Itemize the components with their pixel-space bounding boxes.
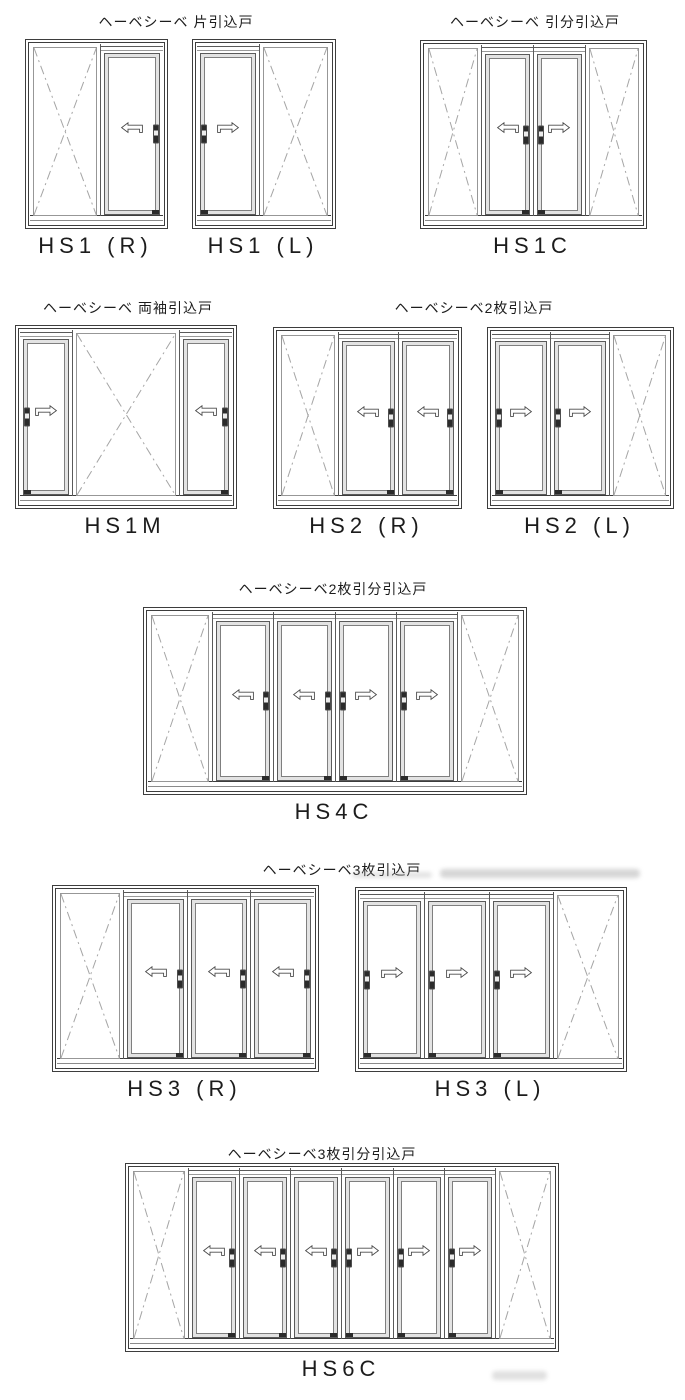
door-handle xyxy=(177,969,183,988)
fixed-panel xyxy=(130,1168,188,1339)
fixed-panel xyxy=(585,45,642,216)
door-leaf xyxy=(200,53,256,215)
door-leaf xyxy=(23,339,69,495)
diagram-hs1-l xyxy=(192,39,336,229)
sliding-door-panel xyxy=(239,1168,290,1339)
fixed-panel-inner xyxy=(76,333,176,496)
x-cross-icon xyxy=(429,49,477,215)
diagram-hs1-r xyxy=(25,39,168,229)
fixed-panel xyxy=(72,330,179,496)
door-leaf xyxy=(554,341,606,495)
panel-row xyxy=(57,890,314,1059)
fixed-panel-inner xyxy=(428,48,478,216)
diagram-frame xyxy=(28,42,165,226)
door-handle xyxy=(280,1248,286,1267)
door-leaf xyxy=(485,54,530,215)
arrow-right-icon xyxy=(509,966,533,981)
door-leaf xyxy=(294,1177,338,1338)
sliding-door-panel xyxy=(123,890,187,1059)
figure-title: ヘーベシーベ2枚引込戸 xyxy=(395,298,554,318)
fixed-panel xyxy=(609,332,669,496)
arrow-right-icon xyxy=(547,121,571,136)
sliding-door-panel xyxy=(179,330,232,496)
diagram-frame xyxy=(276,330,459,506)
diagram-label: HS3 (L) xyxy=(435,1076,546,1102)
door-leaf xyxy=(192,1177,236,1338)
x-cross-icon xyxy=(614,336,665,495)
sliding-door-panel xyxy=(489,892,554,1059)
fixed-panel-inner xyxy=(281,335,335,496)
diagram-hs4c xyxy=(143,607,527,795)
fixed-panel-inner xyxy=(151,615,209,782)
x-cross-icon xyxy=(77,334,175,495)
door-handle xyxy=(447,409,453,428)
arrow-left-icon xyxy=(292,687,316,702)
scan-smudge xyxy=(492,1371,547,1380)
diagram-hs1m xyxy=(15,325,237,509)
arrow-left-icon xyxy=(144,965,168,980)
x-cross-icon xyxy=(264,48,327,215)
door-leaf xyxy=(243,1177,287,1338)
panel-row xyxy=(130,1168,554,1339)
sliding-door-panel xyxy=(492,332,550,496)
figure-title: ヘーベシーベ2枚引分引込戸 xyxy=(239,579,428,599)
sliding-door-panel xyxy=(250,890,314,1059)
sliding-door-panel xyxy=(424,892,489,1059)
arrow-left-icon xyxy=(304,1244,328,1259)
fixed-panel-inner xyxy=(263,47,328,216)
figure-title: ヘーベシーベ 引分引込戸 xyxy=(450,12,620,32)
arrow-left-icon xyxy=(231,687,255,702)
x-cross-icon xyxy=(500,1172,550,1338)
door-leaf xyxy=(397,1177,441,1338)
sliding-door-panel xyxy=(550,332,609,496)
door-handle xyxy=(201,125,207,144)
diagram-label: HS2 (L) xyxy=(524,513,635,539)
door-handle xyxy=(496,409,502,428)
x-cross-icon xyxy=(462,616,518,781)
arrow-right-icon xyxy=(354,687,378,702)
sliding-door-panel xyxy=(290,1168,341,1339)
sliding-door-panel xyxy=(444,1168,495,1339)
sliding-door-panel xyxy=(360,892,424,1059)
door-leaf xyxy=(191,899,248,1058)
diagram-hs2-r xyxy=(273,327,462,509)
x-cross-icon xyxy=(558,896,618,1058)
door-handle xyxy=(346,1248,352,1267)
sliding-door-panel xyxy=(212,612,273,782)
diagram-hs2-l xyxy=(487,327,674,509)
fixed-panel xyxy=(278,332,338,496)
door-handle xyxy=(325,692,331,711)
door-handle xyxy=(494,970,500,989)
arrow-left-icon xyxy=(202,1244,226,1259)
door-leaf xyxy=(104,53,160,215)
door-handle xyxy=(429,970,435,989)
door-leaf xyxy=(495,341,547,495)
fixed-panel xyxy=(259,44,331,216)
door-handle xyxy=(24,408,30,427)
door-leaf xyxy=(254,899,311,1058)
arrow-left-icon xyxy=(271,965,295,980)
door-leaf xyxy=(448,1177,492,1338)
diagram-label: HS1C xyxy=(493,233,572,259)
diagram-frame xyxy=(146,610,524,792)
diagram-hs3-r xyxy=(52,885,319,1072)
arrow-right-icon xyxy=(509,404,533,419)
sliding-door-panel xyxy=(335,612,396,782)
panel-row xyxy=(492,332,669,496)
arrow-left-icon xyxy=(253,1244,277,1259)
sliding-door-panel xyxy=(341,1168,392,1339)
panel-row xyxy=(197,44,331,216)
door-types-figure: ヘーベシーベ 片引込戸ヘーベシーベ 引分引込戸ヘーベシーベ 両袖引込戸ヘーベシー… xyxy=(0,0,685,1400)
arrow-left-icon xyxy=(496,121,520,136)
fixed-panel-inner xyxy=(60,893,120,1059)
diagram-label: HS2 (R) xyxy=(309,513,423,539)
arrow-left-icon xyxy=(194,403,218,418)
sliding-door-panel xyxy=(188,1168,239,1339)
door-leaf xyxy=(402,341,454,495)
diagram-frame xyxy=(55,888,316,1069)
door-leaf xyxy=(345,1177,389,1338)
diagram-label: HS6C xyxy=(302,1356,381,1382)
panel-row xyxy=(278,332,457,496)
door-leaf xyxy=(537,54,582,215)
sliding-door-panel xyxy=(20,330,72,496)
diagram-frame xyxy=(423,43,644,226)
door-handle xyxy=(401,692,407,711)
sliding-door-panel xyxy=(393,1168,444,1339)
x-cross-icon xyxy=(134,1172,184,1338)
door-leaf xyxy=(363,901,421,1058)
figure-title: ヘーベシーベ 両袖引込戸 xyxy=(43,298,213,318)
panel-row xyxy=(20,330,232,496)
door-leaf xyxy=(216,621,270,781)
x-cross-icon xyxy=(152,616,208,781)
arrow-right-icon xyxy=(415,687,439,702)
arrow-left-icon xyxy=(356,404,380,419)
door-handle xyxy=(538,125,544,144)
door-handle xyxy=(304,969,310,988)
diagram-frame xyxy=(358,890,624,1069)
diagram-hs3-l xyxy=(355,887,627,1072)
door-handle xyxy=(398,1248,404,1267)
sliding-door-panel xyxy=(197,44,259,216)
door-handle xyxy=(263,692,269,711)
fixed-panel-inner xyxy=(613,335,666,496)
fixed-panel-inner xyxy=(499,1171,551,1339)
fixed-panel xyxy=(553,892,622,1059)
door-handle xyxy=(229,1248,235,1267)
diagram-label: HS3 (R) xyxy=(127,1076,241,1102)
fixed-panel-inner xyxy=(557,895,619,1059)
x-cross-icon xyxy=(34,48,96,215)
fixed-panel xyxy=(148,612,212,782)
figure-title: ヘーベシーベ3枚引分引込戸 xyxy=(228,1144,417,1164)
arrow-right-icon xyxy=(458,1244,482,1259)
diagram-label: HS1 (L) xyxy=(208,233,319,259)
fixed-panel xyxy=(57,890,123,1059)
diagram-label: HS1 (R) xyxy=(38,233,152,259)
x-cross-icon xyxy=(61,894,119,1058)
x-cross-icon xyxy=(590,49,638,215)
fixed-panel xyxy=(425,45,481,216)
door-handle xyxy=(364,970,370,989)
door-handle xyxy=(449,1248,455,1267)
diagram-label: HS4C xyxy=(295,799,374,825)
diagram-label: HS1M xyxy=(84,513,165,539)
arrow-left-icon xyxy=(207,965,231,980)
fixed-panel-inner xyxy=(589,48,639,216)
diagram-frame xyxy=(490,330,671,506)
door-leaf xyxy=(493,901,551,1058)
figure-title: ヘーベシーベ 片引込戸 xyxy=(99,12,254,32)
door-handle xyxy=(388,409,394,428)
door-handle xyxy=(331,1248,337,1267)
scan-smudge xyxy=(440,869,640,878)
door-handle xyxy=(340,692,346,711)
door-leaf xyxy=(342,341,394,495)
door-leaf xyxy=(183,339,229,495)
sliding-door-panel xyxy=(481,45,533,216)
door-handle xyxy=(523,125,529,144)
sliding-door-panel xyxy=(338,332,397,496)
sliding-door-panel xyxy=(100,44,163,216)
scan-smudge xyxy=(352,872,432,878)
panel-row xyxy=(148,612,522,782)
panel-row xyxy=(360,892,622,1059)
diagram-frame xyxy=(195,42,333,226)
arrow-right-icon xyxy=(380,966,404,981)
sliding-door-panel xyxy=(398,332,457,496)
diagram-frame xyxy=(18,328,234,506)
fixed-panel-inner xyxy=(133,1171,185,1339)
diagram-hs1c xyxy=(420,40,647,229)
door-handle xyxy=(555,409,561,428)
panel-row xyxy=(30,44,163,216)
door-leaf xyxy=(339,621,393,781)
arrow-left-icon xyxy=(416,404,440,419)
fixed-panel xyxy=(457,612,522,782)
sliding-door-panel xyxy=(273,612,334,782)
sliding-door-panel xyxy=(187,890,251,1059)
door-handle xyxy=(240,969,246,988)
fixed-panel-inner xyxy=(33,47,97,216)
fixed-panel xyxy=(30,44,100,216)
x-cross-icon xyxy=(282,336,334,495)
fixed-panel xyxy=(495,1168,554,1339)
arrow-left-icon xyxy=(120,120,144,135)
arrow-right-icon xyxy=(356,1244,380,1259)
arrow-right-icon xyxy=(216,120,240,135)
arrow-right-icon xyxy=(407,1244,431,1259)
arrow-right-icon xyxy=(34,403,58,418)
arrow-right-icon xyxy=(445,966,469,981)
diagram-hs6c xyxy=(125,1163,559,1352)
door-leaf xyxy=(277,621,331,781)
fixed-panel-inner xyxy=(461,615,519,782)
sliding-door-panel xyxy=(533,45,585,216)
arrow-right-icon xyxy=(568,404,592,419)
panel-row xyxy=(425,45,642,216)
sliding-door-panel xyxy=(396,612,457,782)
diagram-frame xyxy=(128,1166,556,1349)
door-leaf xyxy=(400,621,454,781)
door-handle xyxy=(222,408,228,427)
door-leaf xyxy=(127,899,184,1058)
door-handle xyxy=(153,125,159,144)
door-leaf xyxy=(428,901,486,1058)
